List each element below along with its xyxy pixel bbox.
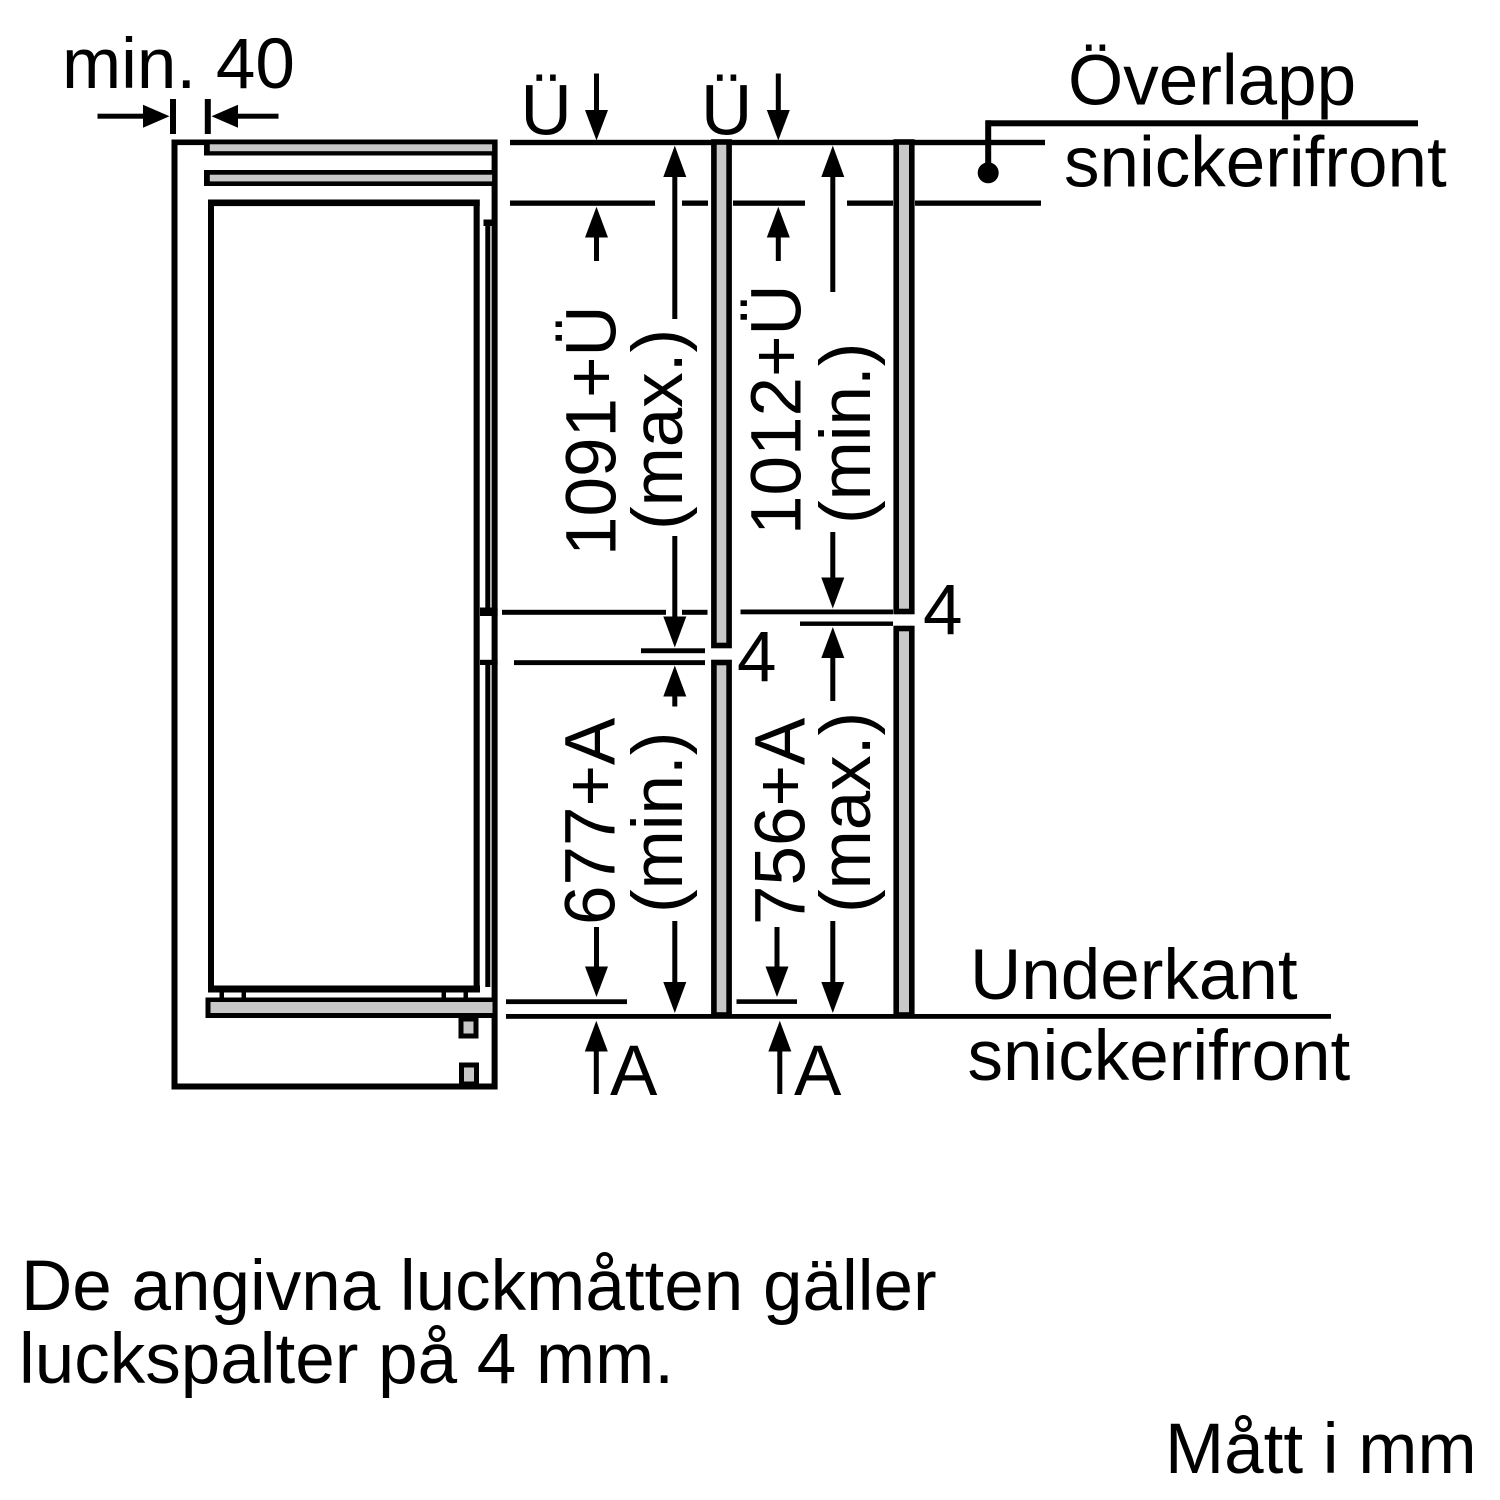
svg-text:snickerifront: snickerifront [968,1017,1351,1096]
svg-text:(min.): (min.) [619,732,698,913]
svg-text:1012+Ü: 1012+Ü [738,284,817,535]
svg-text:De angivna luckmåtten gäller: De angivna luckmåtten gäller [21,1247,937,1326]
svg-text:Överlapp: Överlapp [1068,42,1356,121]
svg-text:Mått i mm: Mått i mm [1165,1410,1477,1489]
svg-text:(min.): (min.) [807,343,886,524]
svg-text:Ü: Ü [521,71,572,150]
svg-text:Underkant: Underkant [970,936,1298,1015]
svg-text:A: A [610,1032,658,1111]
svg-text:(max.): (max.) [807,712,886,913]
svg-text:snickerifront: snickerifront [1064,124,1447,203]
svg-text:A: A [794,1032,842,1111]
svg-text:(max.): (max.) [619,329,698,530]
svg-text:Ü: Ü [701,71,752,150]
svg-text:4: 4 [737,618,777,697]
svg-text:min. 40: min. 40 [62,25,295,104]
svg-text:luckspalter på 4 mm.: luckspalter på 4 mm. [19,1320,674,1399]
svg-text:4: 4 [923,571,963,650]
